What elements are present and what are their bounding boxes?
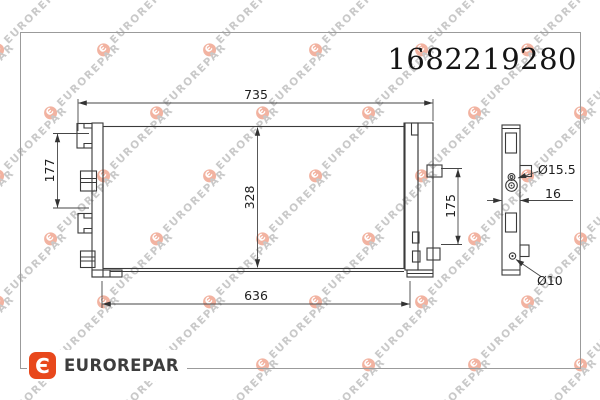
dim-core-width: 636 <box>244 288 268 303</box>
dim-overall-width: 735 <box>244 87 268 102</box>
left-fitting-top <box>81 171 97 191</box>
right-bracket-top <box>427 165 442 177</box>
dim-left-pitch: 177 <box>42 159 57 183</box>
brand-wordmark: EUROREPAR <box>64 356 179 375</box>
right-header <box>405 123 418 270</box>
brand-logo: Є EUROREPAR <box>27 350 187 381</box>
dim-hole-diameter: Ø10 <box>537 273 563 288</box>
dim-core-height: 328 <box>242 186 257 210</box>
front-view <box>77 123 442 277</box>
left-bracket-bottom <box>78 214 92 234</box>
left-tank <box>92 123 103 277</box>
left-fitting-bottom <box>81 251 96 268</box>
dim-depth: 16 <box>545 186 561 201</box>
catalog-drawing-page: ЄEUROREPARЄEUROREPARЄEUROREPARЄEUROREPAR… <box>0 0 600 400</box>
dim-inlet-diameter: Ø15.5 <box>538 162 576 177</box>
dimension-lines <box>53 99 573 308</box>
dim-right-pitch: 175 <box>443 194 458 218</box>
side-view <box>502 125 532 275</box>
eurorepar-logo-icon: Є <box>29 352 56 379</box>
part-number: 1682219280 <box>387 42 577 76</box>
